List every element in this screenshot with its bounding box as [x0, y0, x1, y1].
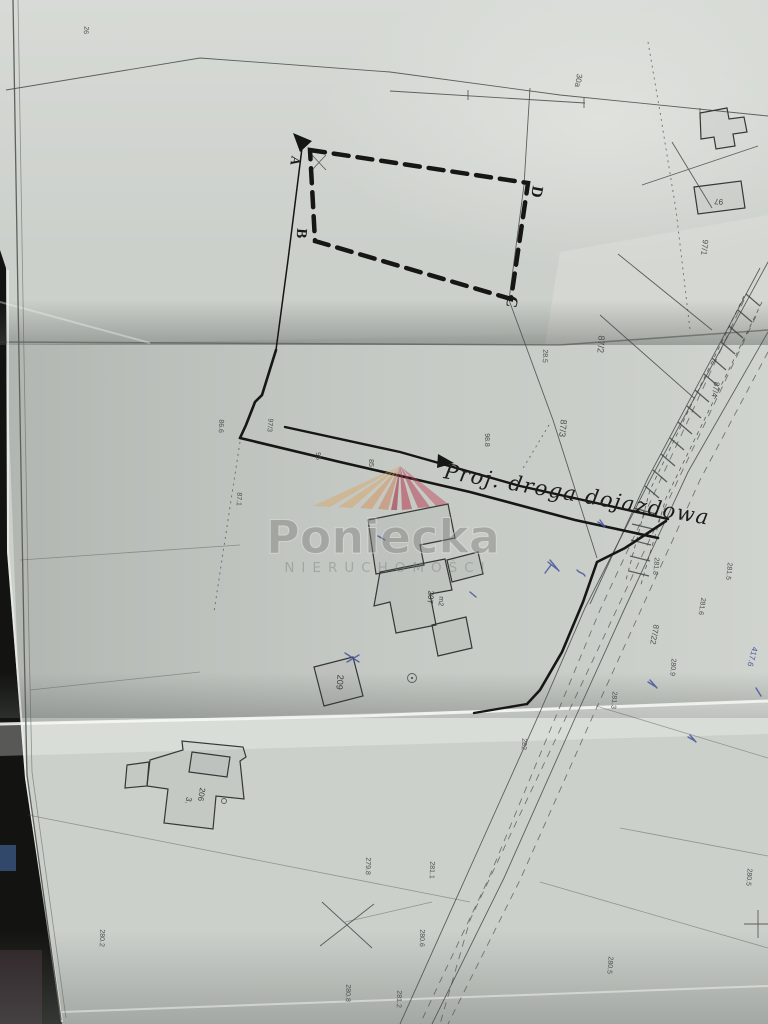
building-number: m2 [437, 596, 445, 606]
elevation-value: 282 [520, 738, 527, 750]
photographed-cadastral-map: Poniecka NIERUCHOMOŚCI Proj. droga dojaz… [0, 0, 768, 1024]
elevation-value: 28.5 [541, 349, 548, 363]
elevation-value: 86.6 [217, 419, 225, 433]
elevation-value: 280.8 [344, 984, 352, 1002]
map-photo-canvas: Poniecka NIERUCHOMOŚCI Proj. droga dojaz… [0, 0, 768, 1024]
elevation-value: 281.1 [428, 861, 436, 879]
parcel-number: 87/2 [595, 335, 606, 353]
elevation-value: 280.2 [98, 929, 106, 947]
building-number: 207 [425, 590, 435, 605]
building-number: 97 [713, 197, 723, 207]
elevation-value: 85 [367, 459, 374, 467]
desk-blue-streak [0, 845, 16, 871]
elevation-value: 280.6 [418, 929, 426, 947]
elevation-value: 26 [82, 26, 90, 34]
parcel-number: 87/3 [557, 419, 569, 437]
corner-letter: B [293, 228, 310, 239]
watermark-subtitle: NIERUCHOMOŚCI [284, 558, 491, 576]
elevation-value: 95 [314, 452, 321, 460]
building-number: 209 [334, 674, 345, 690]
watermark-brand: Poniecka [266, 510, 500, 564]
elevation-value: 87.1 [235, 492, 243, 506]
parcel-number: 97/3 [265, 418, 273, 432]
elevation-value: 279.8 [364, 857, 372, 875]
elevation-value: 281.2 [395, 990, 403, 1008]
elevation-value: 98.8 [483, 433, 490, 447]
